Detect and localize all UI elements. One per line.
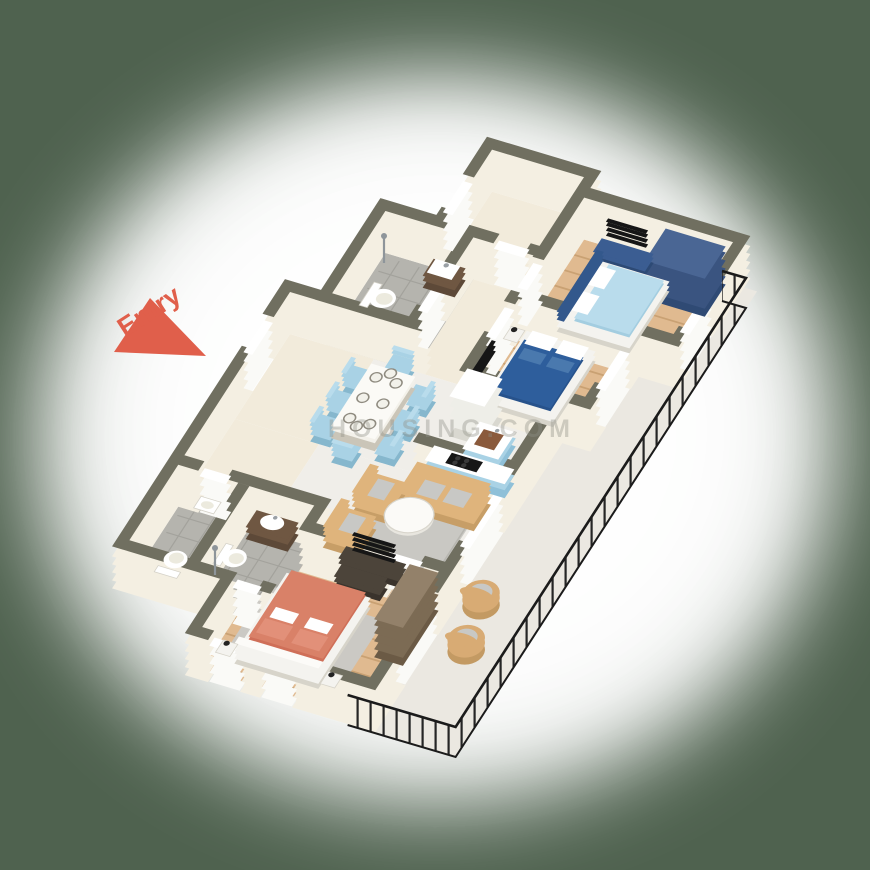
- floor-plan-canvas: Entry HOUSING.COM: [0, 0, 870, 870]
- watermark: HOUSING.COM: [328, 415, 576, 443]
- floor-plan-3d: Entry HOUSING.COM: [0, 0, 870, 870]
